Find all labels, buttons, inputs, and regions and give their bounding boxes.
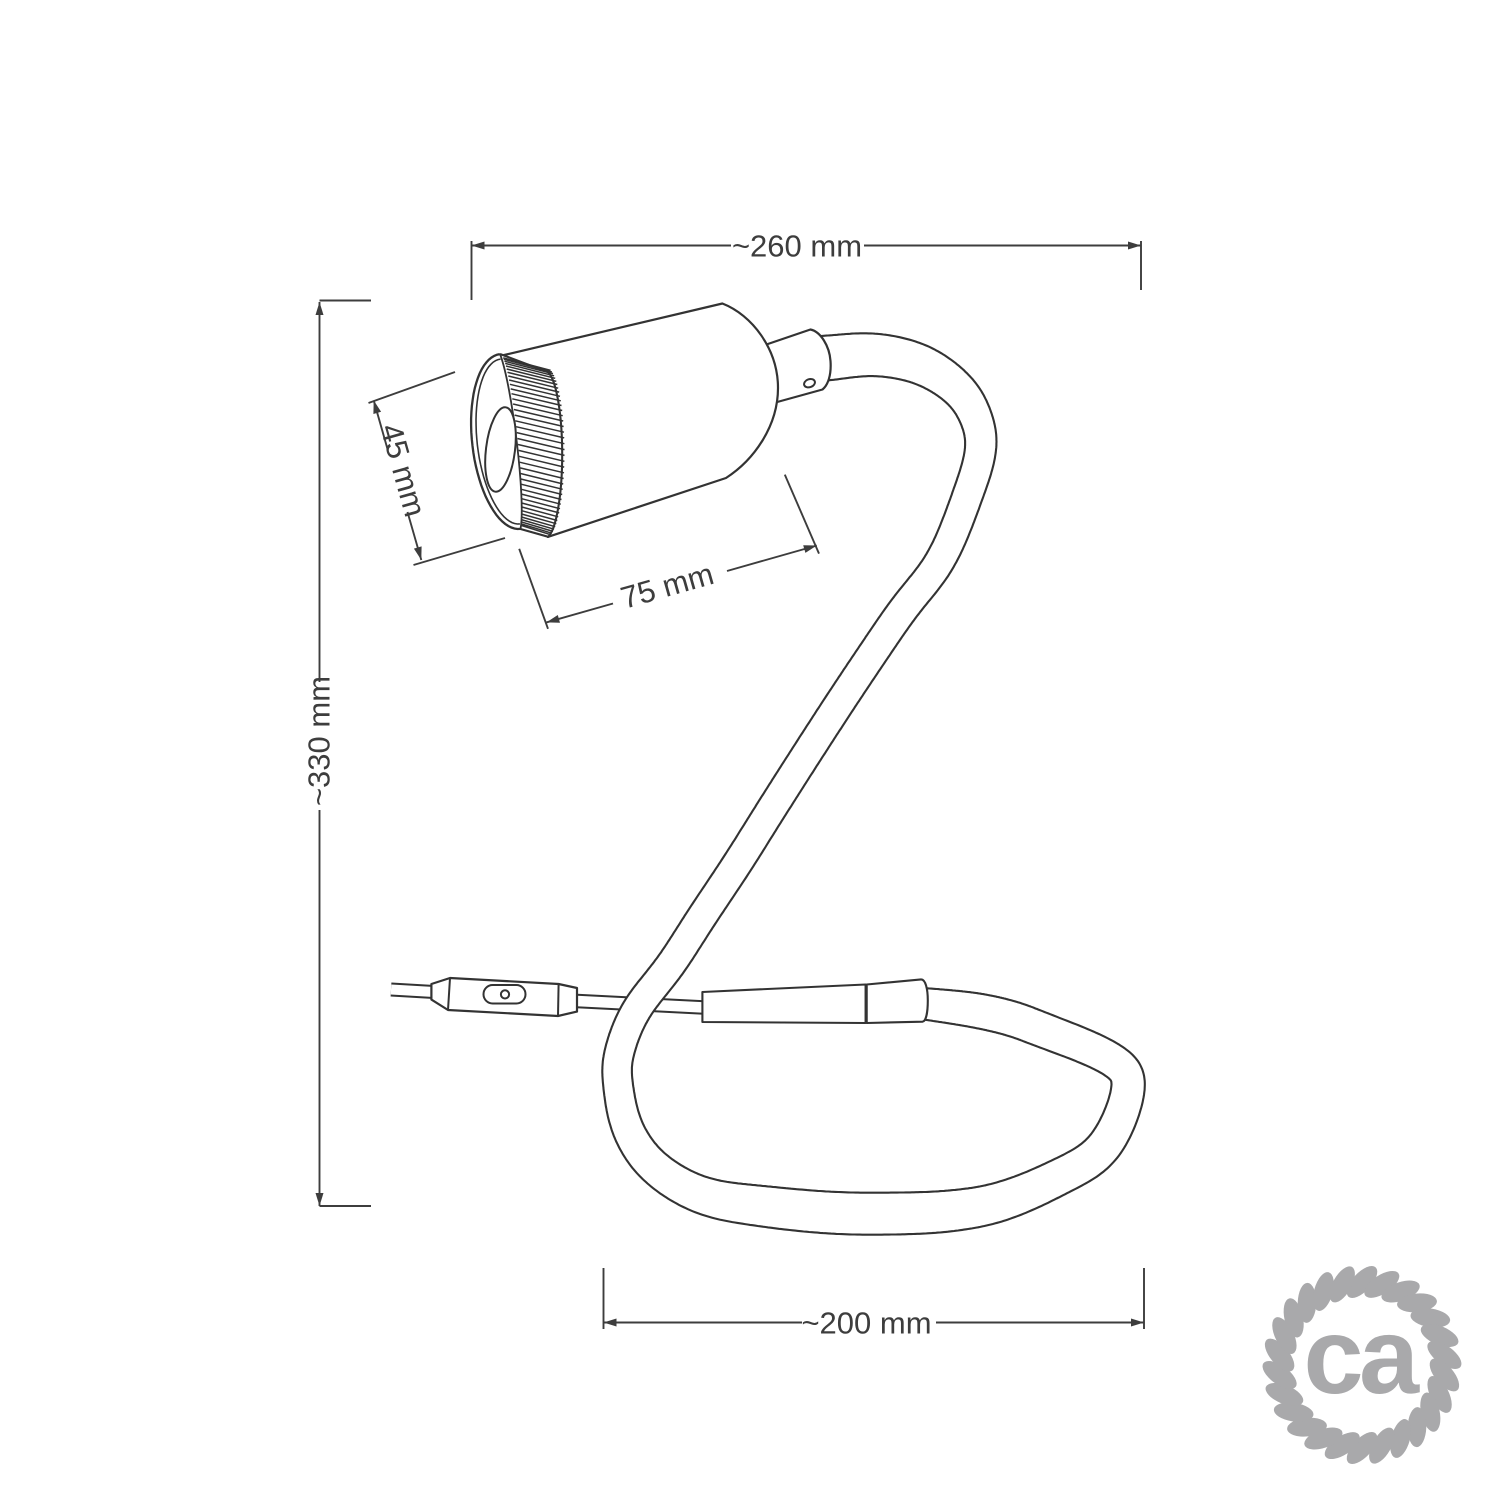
svg-text:ca: ca <box>1303 1295 1420 1416</box>
svg-text:~260 mm: ~260 mm <box>732 229 862 264</box>
svg-text:~200 mm: ~200 mm <box>801 1306 931 1341</box>
svg-text:~330 mm: ~330 mm <box>302 676 337 806</box>
